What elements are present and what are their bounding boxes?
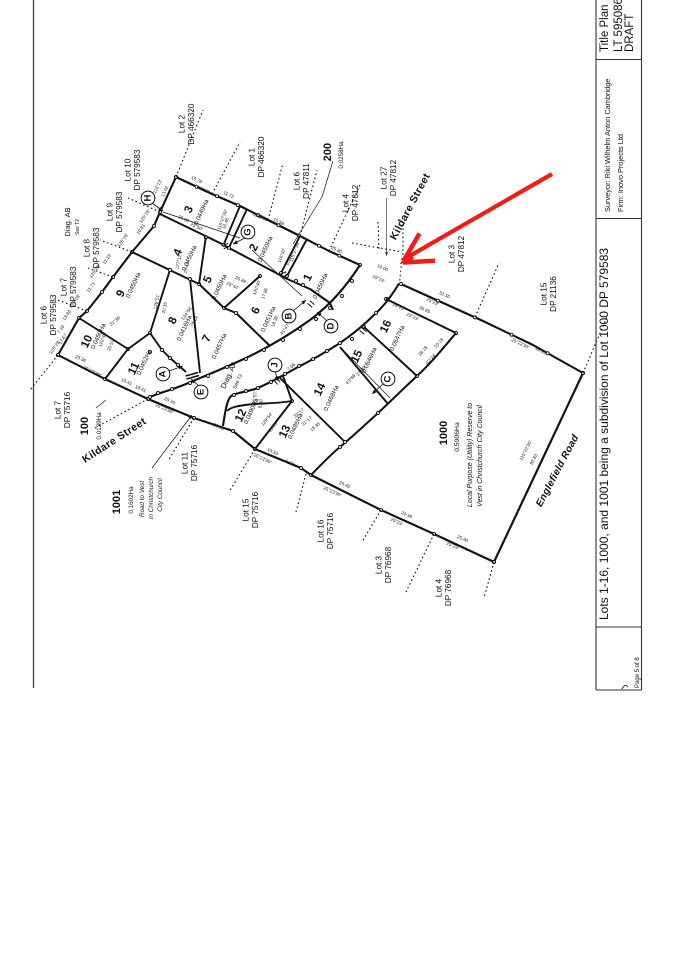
svg-text:100: 100 bbox=[79, 417, 91, 435]
svg-text:DP 76968: DP 76968 bbox=[444, 569, 453, 606]
svg-text:in Christchurch: in Christchurch bbox=[148, 477, 155, 519]
svg-text:DP 47811: DP 47811 bbox=[302, 163, 311, 199]
svg-text:DP 75716: DP 75716 bbox=[190, 444, 199, 481]
svg-text:Lot 3: Lot 3 bbox=[374, 555, 383, 574]
svg-text:Surveyor: Riki Wilhelm Anton C: Surveyor: Riki Wilhelm Anton Cambridge bbox=[603, 79, 612, 213]
svg-text:1000: 1000 bbox=[438, 421, 450, 445]
svg-text:Lot 15: Lot 15 bbox=[241, 498, 250, 521]
svg-text:Lot 10: Lot 10 bbox=[123, 158, 132, 181]
svg-text:DP 75716: DP 75716 bbox=[251, 491, 260, 528]
svg-text:E: E bbox=[196, 389, 207, 395]
svg-text:Lot 8: Lot 8 bbox=[82, 238, 91, 257]
svg-text:DP 579583: DP 579583 bbox=[92, 227, 101, 268]
svg-text:DP 466320: DP 466320 bbox=[257, 136, 266, 177]
svg-text:Firm: Inovo Projects Ltd: Firm: Inovo Projects Ltd bbox=[616, 134, 625, 212]
svg-text:J: J bbox=[270, 362, 281, 367]
svg-text:Lot 7: Lot 7 bbox=[59, 277, 68, 296]
svg-text:DP 47812: DP 47812 bbox=[389, 159, 398, 196]
svg-text:DRAFT: DRAFT bbox=[624, 14, 636, 52]
svg-text:0.1602Ha: 0.1602Ha bbox=[128, 486, 135, 514]
svg-text:DP 579583: DP 579583 bbox=[49, 294, 58, 335]
svg-text:DP 47812: DP 47812 bbox=[457, 235, 466, 272]
svg-text:DP 21136: DP 21136 bbox=[549, 276, 558, 312]
svg-text:Vest in Christchurch City Coun: Vest in Christchurch City Council bbox=[477, 405, 484, 507]
svg-text:1001: 1001 bbox=[111, 490, 123, 514]
svg-text:Lot 27: Lot 27 bbox=[379, 166, 388, 189]
svg-text:D: D bbox=[326, 322, 337, 329]
svg-text:Lot 16: Lot 16 bbox=[316, 519, 325, 542]
svg-text:Lot 6: Lot 6 bbox=[292, 171, 301, 190]
svg-text:0.0139Ha: 0.0139Ha bbox=[96, 412, 103, 440]
svg-text:G: G bbox=[243, 228, 254, 235]
svg-text:Diag. AB: Diag. AB bbox=[63, 207, 72, 236]
svg-text:H: H bbox=[143, 194, 154, 201]
svg-text:Lot 9: Lot 9 bbox=[105, 202, 114, 221]
svg-text:Lot 4: Lot 4 bbox=[434, 578, 443, 597]
svg-text:0.0258Ha: 0.0258Ha bbox=[338, 141, 345, 169]
svg-text:See T2: See T2 bbox=[75, 219, 81, 235]
svg-text:Lot 3: Lot 3 bbox=[447, 244, 456, 263]
svg-text:DP 579583: DP 579583 bbox=[115, 191, 124, 232]
svg-text:Lot 11: Lot 11 bbox=[180, 451, 189, 474]
svg-text:Lot 15: Lot 15 bbox=[539, 282, 548, 305]
svg-text:A: A bbox=[158, 370, 169, 377]
svg-text:C: C bbox=[383, 375, 394, 382]
svg-text:B: B bbox=[284, 312, 295, 319]
svg-text:DP 76968: DP 76968 bbox=[384, 546, 393, 583]
svg-text:Road to Vest: Road to Vest bbox=[139, 481, 146, 517]
svg-text:Local Purpose (Utility) Reserv: Local Purpose (Utility) Reserve to bbox=[467, 403, 474, 507]
svg-text:DP 466320: DP 466320 bbox=[187, 103, 196, 144]
svg-text:200: 200 bbox=[322, 143, 334, 161]
svg-text:Lot 7: Lot 7 bbox=[53, 400, 62, 419]
svg-text:DP 47812: DP 47812 bbox=[351, 184, 360, 221]
svg-text:City Council: City Council bbox=[157, 478, 164, 512]
svg-text:Lots 1-16, 1000, and 1001 bein: Lots 1-16, 1000, and 1001 being a subdiv… bbox=[597, 248, 611, 620]
svg-text:Lot 4: Lot 4 bbox=[341, 193, 350, 212]
svg-text:Lot 6: Lot 6 bbox=[39, 305, 48, 324]
svg-text:Page 5 of 8: Page 5 of 8 bbox=[635, 657, 641, 688]
svg-text:Lot 1: Lot 1 bbox=[247, 147, 256, 166]
svg-text:DP 75716: DP 75716 bbox=[63, 391, 72, 428]
svg-text:0.5906Ha: 0.5906Ha bbox=[454, 422, 461, 452]
svg-text:Title Plan: Title Plan bbox=[599, 4, 611, 52]
svg-text:Lot 2: Lot 2 bbox=[177, 114, 186, 133]
svg-text:DP 75716: DP 75716 bbox=[326, 512, 335, 549]
svg-text:DP 579583: DP 579583 bbox=[133, 149, 142, 190]
